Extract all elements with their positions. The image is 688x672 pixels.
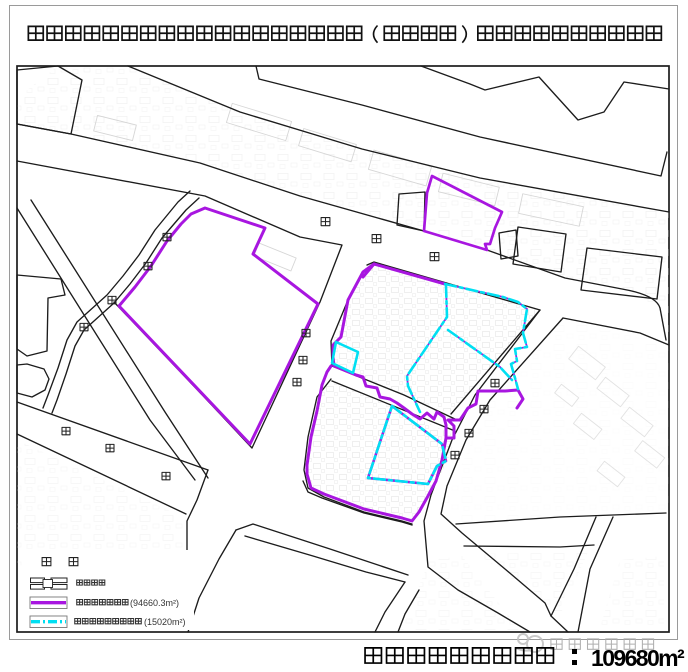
svg-text:109680m²: 109680m² [591,645,685,671]
svg-text:(94660.3m²): (94660.3m²) [130,598,179,608]
svg-text:(15020m²): (15020m²) [144,617,186,627]
